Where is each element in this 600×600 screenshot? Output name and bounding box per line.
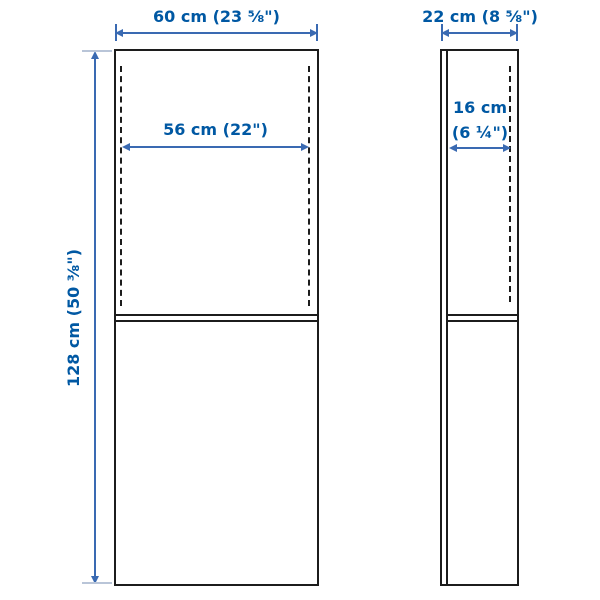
depth-extension-tick-right xyxy=(516,24,518,41)
inner-width-dimension-line xyxy=(126,146,305,148)
height-extension-tick-bottom xyxy=(82,582,112,584)
product-dimension-diagram: 60 cm (23 ⅝") 56 cm (22") 128 cm (50 ⅜")… xyxy=(0,0,600,600)
inner-depth-dimension-line xyxy=(453,147,507,149)
front-divider-top-line xyxy=(116,314,317,316)
height-extension-tick-top xyxy=(82,50,112,52)
inner-depth-label-line2: (6 ¼") xyxy=(425,122,535,144)
inner-depth-arrowhead-right xyxy=(503,144,511,152)
inner-width-dimension-label: 56 cm (22") xyxy=(116,119,315,141)
side-divider-top-line xyxy=(448,314,517,316)
front-hidden-edge-left xyxy=(120,66,122,306)
depth-dimension-label: 22 cm (8 ⅝") xyxy=(410,6,550,28)
front-divider-bottom-line xyxy=(116,320,317,322)
inner-depth-label-line1: 16 cm xyxy=(425,97,535,119)
front-hidden-edge-right xyxy=(308,66,310,306)
depth-dimension-line xyxy=(446,32,513,34)
width-dimension-line xyxy=(120,32,313,34)
inner-depth-arrowhead-left xyxy=(449,144,457,152)
inner-width-arrowhead-left xyxy=(122,143,130,151)
height-dimension-line xyxy=(94,56,96,579)
width-extension-tick-left xyxy=(115,24,117,41)
height-dimension-label: 128 cm (50 ⅜") xyxy=(63,208,87,428)
depth-extension-tick-left xyxy=(441,24,443,41)
height-arrowhead-top xyxy=(91,51,99,59)
width-extension-tick-right xyxy=(316,24,318,41)
inner-width-arrowhead-right xyxy=(301,143,309,151)
width-dimension-label: 60 cm (23 ⅝") xyxy=(116,6,317,28)
side-divider-bottom-line xyxy=(448,320,517,322)
